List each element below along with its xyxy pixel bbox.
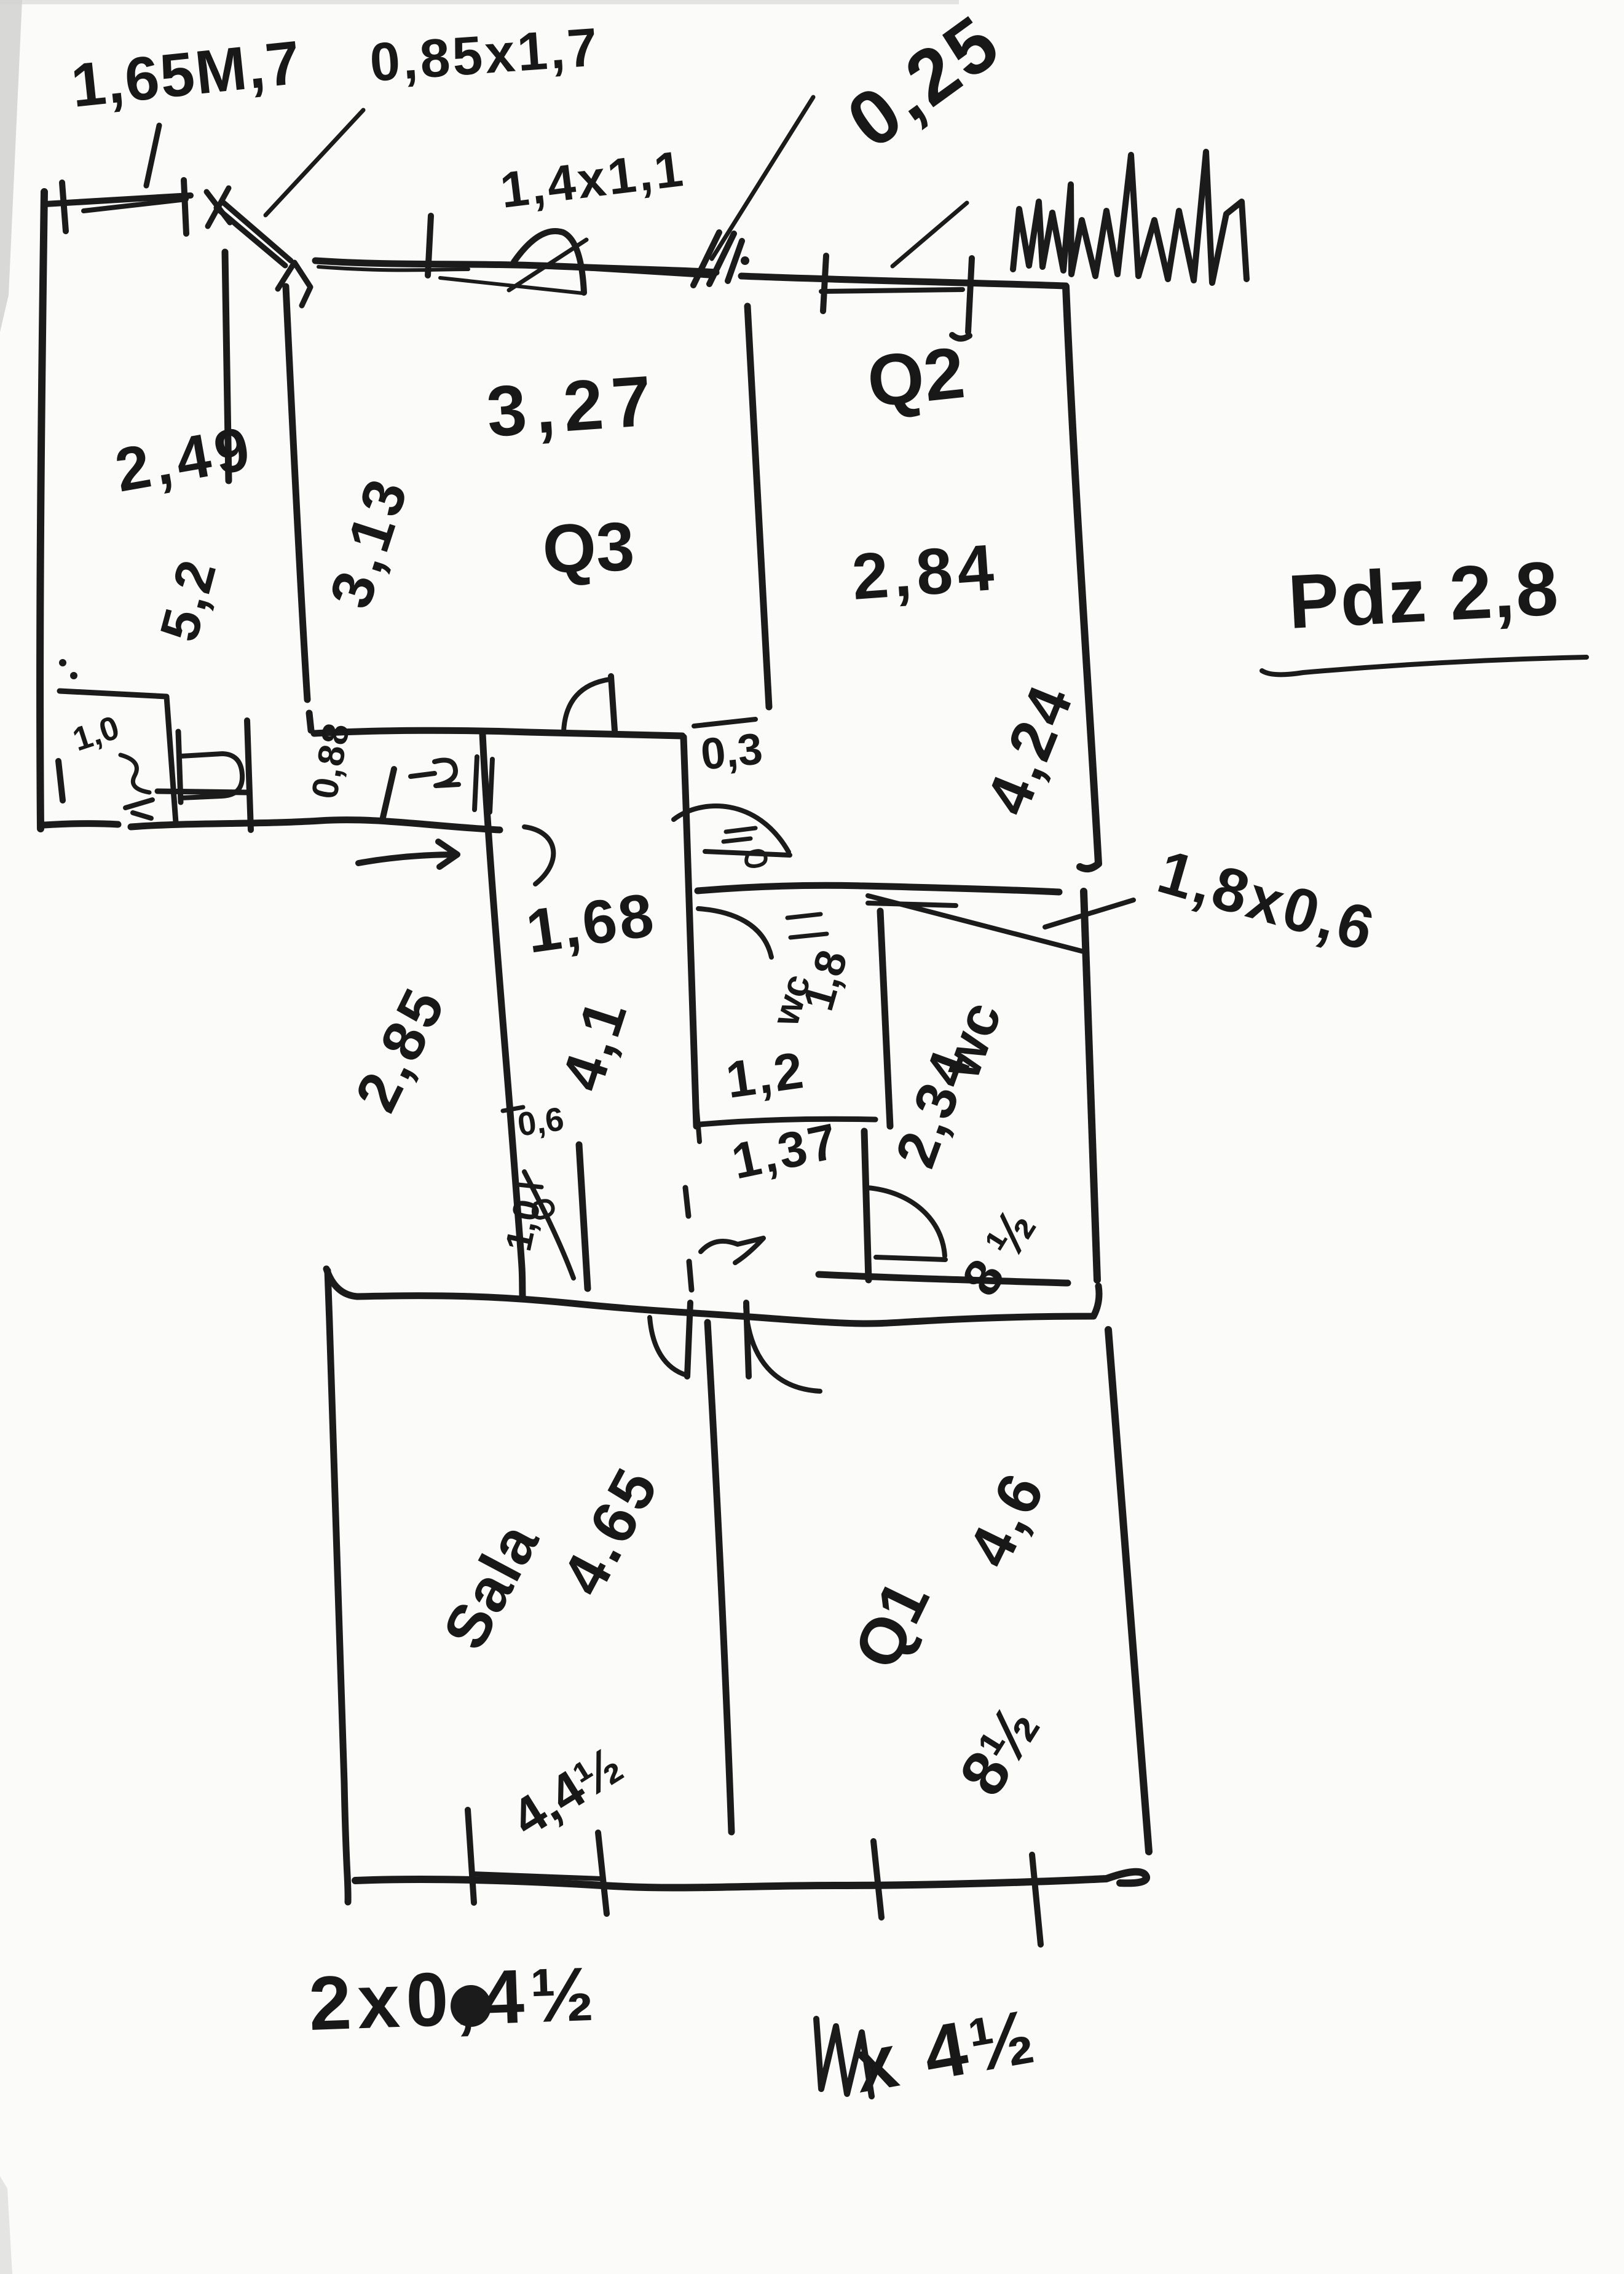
svg-text:0,6: 0,6 — [515, 1100, 566, 1143]
svg-text:3,27: 3,27 — [484, 360, 663, 452]
svg-text:1,2: 1,2 — [722, 1041, 809, 1109]
svg-text:0,3: 0,3 — [698, 724, 765, 780]
svg-text:2,84: 2,84 — [849, 531, 1001, 614]
svg-text:Q2: Q2 — [864, 332, 968, 423]
svg-text:Pdz 2,8: Pdz 2,8 — [1286, 546, 1561, 645]
svg-text:Q3: Q3 — [541, 508, 636, 588]
